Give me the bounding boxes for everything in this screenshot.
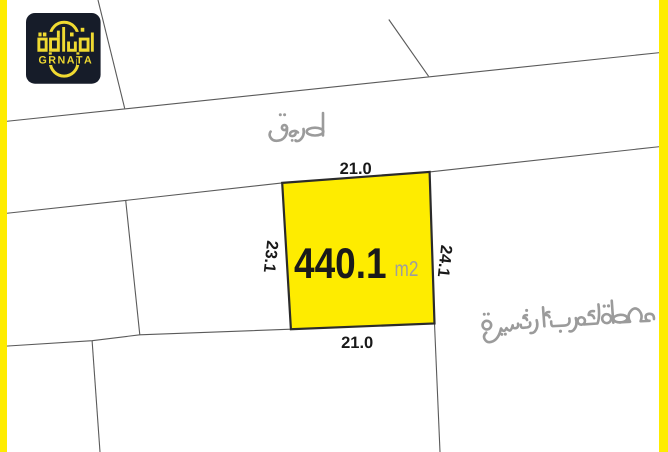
svg-text:440.1: 440.1 [294,240,387,288]
svg-text:21.0: 21.0 [341,334,373,352]
svg-text:21.0: 21.0 [340,160,372,178]
svg-text:m2: m2 [395,257,419,281]
svg-text:23.1: 23.1 [260,240,281,274]
svg-text:24.1: 24.1 [434,244,455,278]
